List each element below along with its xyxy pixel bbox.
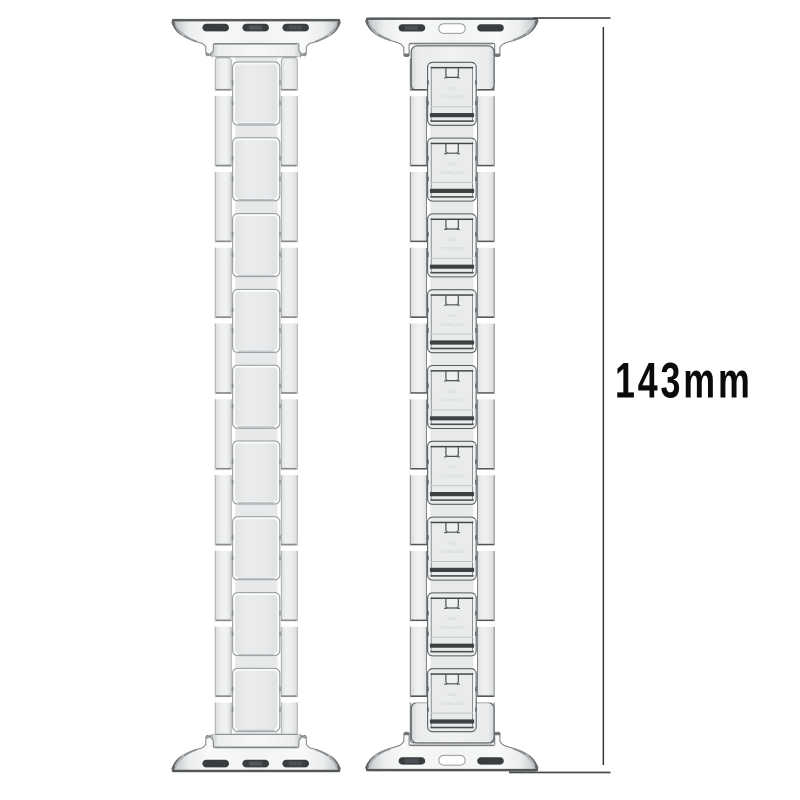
svg-text:143mm: 143mm bbox=[615, 354, 753, 409]
